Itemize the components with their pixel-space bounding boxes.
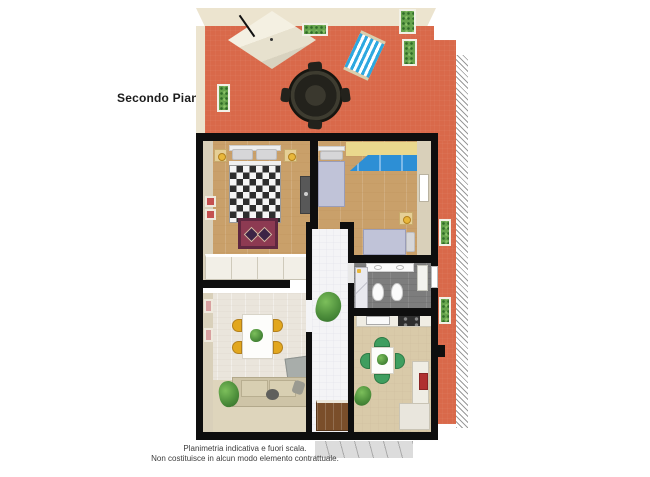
wall-corridor-top-a: [306, 222, 318, 229]
wall-bedroom2-bathroom: [348, 255, 438, 263]
border-planter-1: [399, 9, 416, 34]
bed-pillow-right: [256, 149, 277, 160]
bedroom-2-window: [419, 174, 429, 202]
entry-door: [316, 400, 349, 431]
corridor-living-opening: [306, 300, 312, 332]
bedside-lamp-left: [218, 153, 226, 161]
terrace-planter-top: [302, 23, 328, 36]
wall-corridor-top-b: [340, 222, 354, 229]
kitchen-table-plant: [377, 354, 388, 365]
sofa-pillow-dark: [266, 389, 279, 400]
bidet: [372, 283, 384, 301]
double-bed-blanket: [229, 165, 281, 223]
parasol-tip: [270, 38, 273, 41]
dining-chair-1: [232, 319, 242, 332]
disclaimer-line-1: Planimetria indicativa e fuori scala.: [110, 444, 380, 454]
terrace-left-border: [196, 26, 205, 141]
oven-red-panel: [419, 373, 428, 390]
kitchen-cabinet: [399, 403, 430, 430]
wall-bathroom-kitchen: [348, 308, 438, 316]
living-art-2: [204, 328, 213, 342]
dining-chair-2: [232, 341, 242, 354]
balcony-planter-1: [439, 219, 451, 246]
wall-corridor-left-b: [306, 332, 312, 432]
wall-bottom: [196, 432, 438, 440]
border-planter-2: [402, 39, 417, 66]
bed-pillow-left: [232, 149, 253, 160]
balcony-planter-2: [439, 297, 451, 324]
balcony-hatch-border: [456, 55, 468, 428]
terrace-planter-left: [217, 84, 230, 112]
toilet: [391, 283, 403, 301]
wall-art-2: [205, 209, 216, 220]
sofa-cushion-1: [241, 380, 268, 397]
wall-stub-balcony: [433, 345, 445, 357]
bedside-lamp-right: [288, 153, 296, 161]
single-bed-1-pillow: [320, 151, 343, 160]
living-room-wall-face: [203, 293, 213, 432]
wardrobe-handle: [304, 192, 308, 196]
floor-title: Secondo Piano: [117, 91, 206, 105]
area-rug: [238, 218, 278, 249]
nightstand-right: [284, 149, 297, 162]
nightstand-left: [214, 149, 227, 162]
bedroom1-door-gap: [290, 280, 306, 288]
kitchen-chair-3: [360, 353, 370, 369]
floor-plan-canvas: Secondo Piano: [0, 0, 650, 477]
balcony-floor: [437, 141, 456, 424]
single-bed-2-pillow: [406, 232, 415, 252]
wall-bedrooms-divider: [310, 141, 318, 229]
wall-top: [196, 133, 438, 141]
wall-bedroom1-living: [196, 280, 290, 288]
desk-lamp: [403, 216, 411, 224]
single-bed-1-blanket: [318, 161, 345, 207]
bedroom-2-yellow-wall: [346, 142, 428, 156]
bathroom-cabinet: [417, 265, 428, 291]
patio-table: [288, 68, 343, 123]
terrace-right-extension: [434, 40, 456, 141]
shower: [355, 267, 368, 309]
vanity-sink-left: [374, 265, 382, 270]
disclaimer-text: Planimetria indicativa e fuori scala. No…: [110, 444, 380, 464]
shower-soap: [357, 269, 361, 273]
wall-art-1: [205, 196, 216, 207]
low-wardrobe: [205, 254, 308, 280]
wall-corridor-right-b: [348, 283, 354, 432]
living-art-1: [204, 299, 213, 313]
single-bed-2-blanket: [363, 229, 406, 255]
disclaimer-line-2: Non costituisce in alcun modo elemento c…: [110, 454, 380, 464]
bathroom-door-opening: [348, 263, 354, 283]
bathroom-window: [431, 266, 438, 288]
kitchen-sink: [366, 316, 390, 325]
patio-chair-top: [308, 61, 323, 71]
vanity-sink-right: [396, 265, 404, 270]
kitchen-chair-1: [374, 337, 390, 347]
patio-chair-right: [340, 87, 351, 102]
patio-chair-bottom: [308, 119, 323, 129]
bedroom-2-desk: [399, 212, 413, 225]
wall-corridor-left-a: [306, 229, 312, 300]
stove: [398, 315, 420, 326]
